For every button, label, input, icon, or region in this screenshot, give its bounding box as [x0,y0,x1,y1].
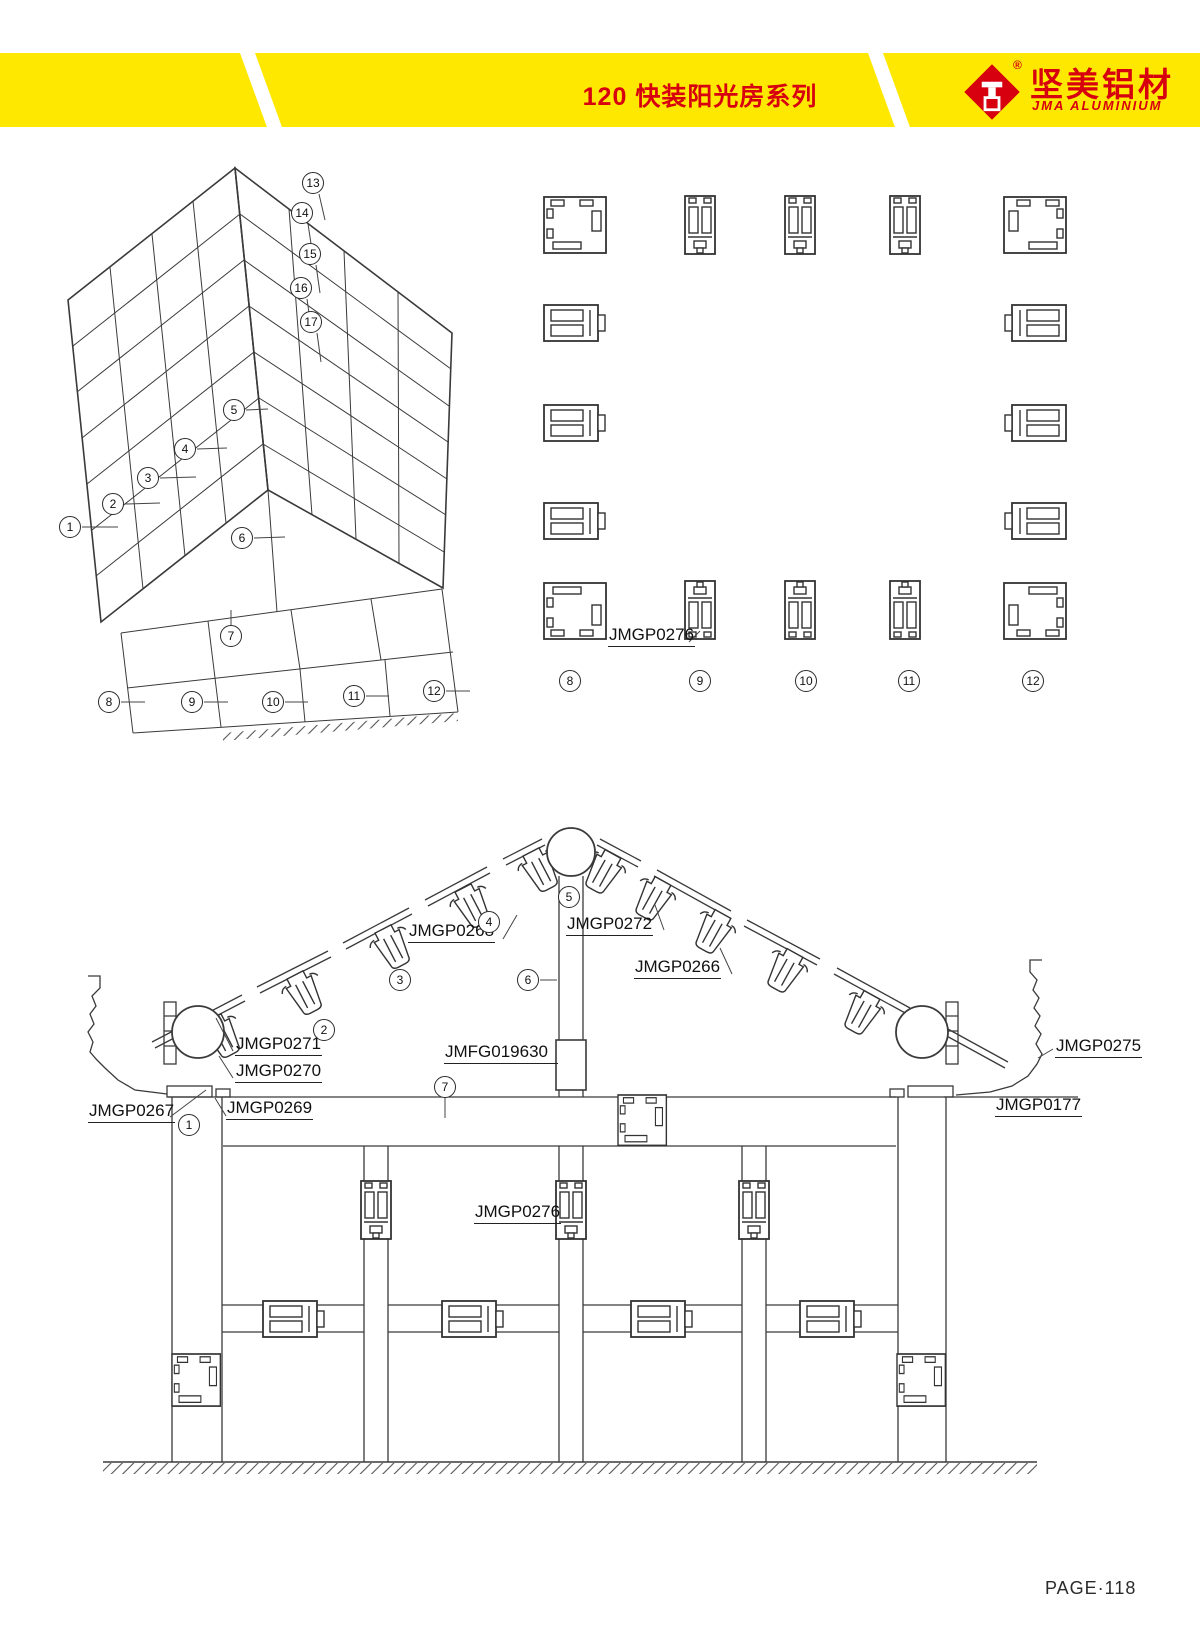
callout-11-iso: 11 [343,685,365,707]
profile-corner-tr [1004,197,1066,253]
gutter-right [956,960,1042,1095]
callout-12-iso: 12 [423,680,445,702]
eave-node-right [896,1006,948,1058]
catalog-page: 120 快装阳光房系列 ® 坚美铝材 JMA ALUMINIUM [0,0,1200,1629]
technical-drawing [0,0,1200,1629]
profile-section-post-base-left [172,1354,220,1406]
callout-15: 15 [299,243,321,265]
callout-4-section: 4 [478,911,500,933]
eave-node-left [172,1006,224,1058]
callout-6-iso: 6 [231,527,253,549]
profile-corner-tl [544,197,606,253]
profile-section-rail [263,1301,324,1337]
ground-hatch [103,1463,1037,1474]
profile-section-post-base-right [897,1354,945,1406]
profile-section-beam [618,1095,666,1145]
callout-7-section: 7 [434,1076,456,1098]
callout-7-iso: 7 [220,625,242,647]
callout-10-iso: 10 [262,691,284,713]
profile-corner-br [1004,583,1066,639]
callout-11-plan: 11 [898,670,920,692]
callout-3-section: 3 [389,969,411,991]
callout-17: 17 [300,311,322,333]
part-label-jmfg019630: JMFG019630 [444,1043,558,1064]
profile-mullion-bottom-11 [890,581,920,639]
post-connector [556,1040,586,1090]
profile-mullion-top-11 [890,196,920,254]
callout-1-iso: 1 [59,516,81,538]
part-label-jmgp0275: JMGP0275 [1055,1037,1142,1058]
profile-mullion-top-9 [685,196,715,254]
part-label-jmgp0270: JMGP0270 [235,1062,322,1083]
part-label-jmgp0267: JMGP0267 [88,1102,175,1123]
profile-corner-bl [544,583,606,639]
ridge-node [547,828,595,876]
callout-9-iso: 9 [181,691,203,713]
profile-rail-right-1 [1005,305,1066,341]
part-label-jmgp0272: JMGP0272 [566,915,653,936]
callout-8-plan: 8 [559,670,581,692]
callout-4-iso: 4 [174,438,196,460]
callout-16: 16 [290,277,312,299]
plan-profile-grid [544,196,1066,642]
profile-rail-right-2 [1005,405,1066,441]
part-label-jmgp0269: JMGP0269 [226,1099,313,1120]
callout-3-iso: 3 [137,467,159,489]
profile-section-rail [800,1301,861,1337]
profile-section-rail [631,1301,692,1337]
part-label-jmgp0266: JMGP0266 [634,958,721,979]
callout-9-plan: 9 [689,670,711,692]
callout-12-plan: 12 [1022,670,1044,692]
callout-2-section: 2 [313,1019,335,1041]
rafter-bracket [277,966,331,1021]
part-label-jmgp0276-plan: JMGP0276 [608,626,695,647]
profile-mullion-bottom-10 [785,581,815,639]
callout-1-section: 1 [178,1114,200,1136]
callout-10-plan: 10 [795,670,817,692]
rafter-bracket [686,904,741,959]
rafter-bracket [835,985,890,1040]
profile-section-post [361,1181,391,1239]
profile-mullion-top-10 [785,196,815,254]
callout-6-section: 6 [517,969,539,991]
callout-5-section: 5 [558,886,580,908]
gutter-left [88,976,167,1094]
iso-roof-view [68,168,470,741]
part-label-jmgp0177: JMGP0177 [995,1096,1082,1117]
rafter-bracket [758,943,813,998]
callout-14: 14 [291,202,313,224]
profile-rail-right-3 [1005,503,1066,539]
part-label-jmgp0276-section: JMGP0276 [474,1203,561,1224]
profile-section-post [739,1181,769,1239]
callout-2-iso: 2 [102,493,124,515]
profile-rail-left-2 [544,405,605,441]
callout-13: 13 [302,172,324,194]
callout-5-iso: 5 [223,399,245,421]
profile-section-rail [442,1301,503,1337]
profile-rail-left-3 [544,503,605,539]
part-label-jmgp0271: JMGP0271 [235,1035,322,1056]
profile-rail-left-1 [544,305,605,341]
callout-8-iso: 8 [98,691,120,713]
page-number: PAGE·118 [1045,1578,1136,1599]
